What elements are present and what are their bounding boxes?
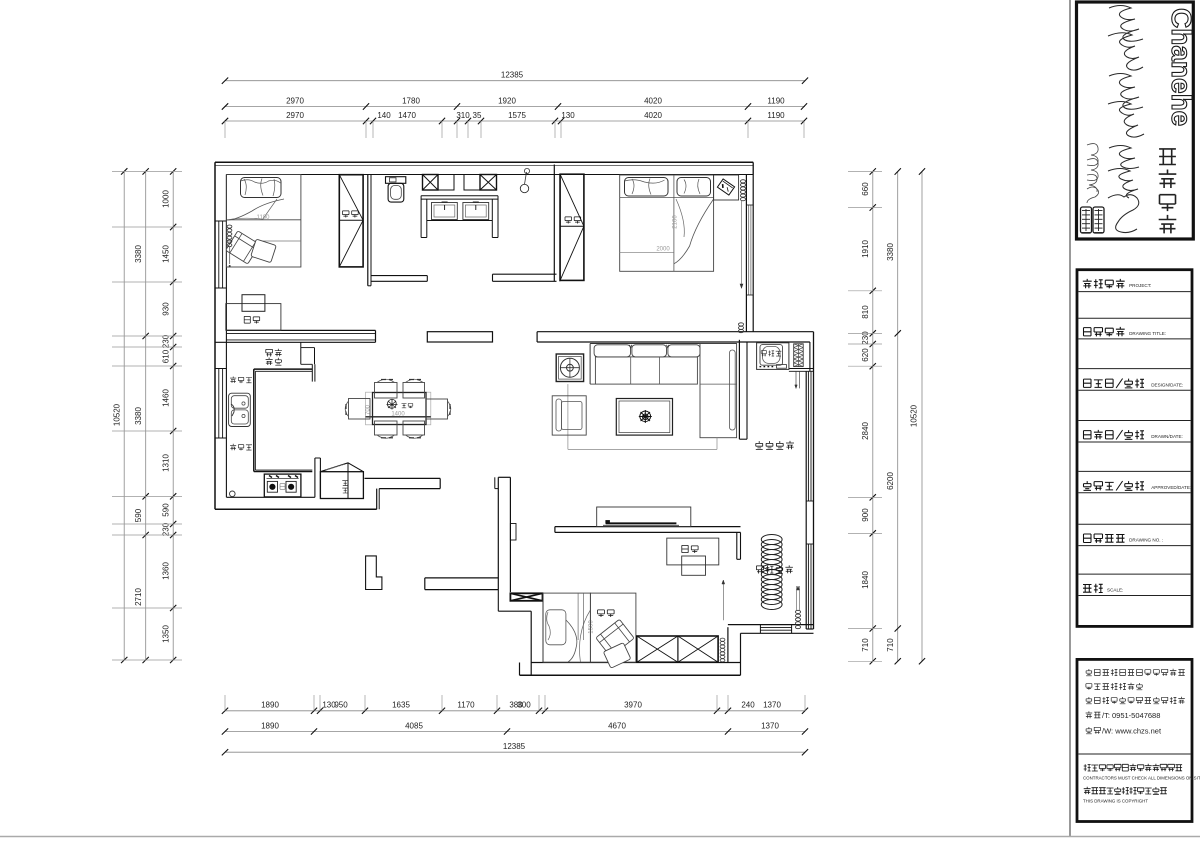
svg-text:2970: 2970 <box>286 96 304 105</box>
svg-text:1635: 1635 <box>392 701 410 710</box>
svg-text:10520: 10520 <box>910 404 919 427</box>
svg-text:700: 700 <box>365 404 371 415</box>
svg-text:DRAWING NO. :: DRAWING NO. : <box>1129 538 1163 543</box>
svg-text:APPROVED/DATE:: APPROVED/DATE: <box>1151 485 1191 490</box>
svg-text:4020: 4020 <box>644 111 662 120</box>
svg-text:Chanehe: Chanehe <box>1166 8 1197 126</box>
svg-text:1350: 1350 <box>162 625 171 643</box>
svg-text:1370: 1370 <box>763 701 781 710</box>
svg-text:2000: 2000 <box>656 247 670 253</box>
svg-text:CONTRACTORS MUST CHECK ALL DIM: CONTRACTORS MUST CHECK ALL DIMENSIONS ON… <box>1083 776 1200 781</box>
svg-text:230: 230 <box>162 334 171 348</box>
svg-text:2840: 2840 <box>861 422 870 440</box>
svg-text:130: 130 <box>561 111 575 120</box>
svg-text:DRAWING TITLE:: DRAWING TITLE: <box>1129 331 1166 336</box>
svg-text:/W: www.chzs.net: /W: www.chzs.net <box>1102 726 1162 735</box>
svg-text:12385: 12385 <box>501 71 524 80</box>
svg-text:590: 590 <box>134 508 143 522</box>
svg-text:1575: 1575 <box>508 111 526 120</box>
svg-text:10520: 10520 <box>113 403 122 426</box>
svg-text:PROJECT:: PROJECT: <box>1129 283 1151 288</box>
svg-text:1370: 1370 <box>761 721 779 730</box>
svg-text:1460: 1460 <box>162 389 171 407</box>
svg-text:1780: 1780 <box>402 96 420 105</box>
svg-text:310: 310 <box>456 111 470 120</box>
svg-text:710: 710 <box>886 638 895 652</box>
svg-text:930: 930 <box>162 302 171 316</box>
svg-text:710: 710 <box>861 638 870 652</box>
svg-text:4020: 4020 <box>644 96 662 105</box>
svg-text:900: 900 <box>861 508 870 522</box>
svg-text:/T: 0951-5047688: /T: 0951-5047688 <box>1102 711 1160 720</box>
svg-text:1500: 1500 <box>588 620 594 634</box>
svg-text:240: 240 <box>741 701 755 710</box>
svg-text:1100: 1100 <box>257 215 271 221</box>
svg-text:950: 950 <box>334 701 348 710</box>
svg-text:1450: 1450 <box>162 245 171 263</box>
svg-text:THIS DRAWING IS COPYRIGHT: THIS DRAWING IS COPYRIGHT <box>1083 799 1148 804</box>
svg-text:1920: 1920 <box>498 96 516 105</box>
svg-text:4670: 4670 <box>608 721 626 730</box>
svg-text:810: 810 <box>861 305 870 319</box>
svg-text:2970: 2970 <box>286 111 304 120</box>
svg-text:1890: 1890 <box>261 721 279 730</box>
svg-text:1910: 1910 <box>861 240 870 258</box>
svg-text:660: 660 <box>861 182 870 196</box>
svg-text:1360: 1360 <box>162 562 171 580</box>
svg-text:DESIGN/DATE:: DESIGN/DATE: <box>1151 383 1183 388</box>
svg-text:4085: 4085 <box>405 721 423 730</box>
svg-text:620: 620 <box>861 348 870 362</box>
svg-text:230: 230 <box>162 522 171 536</box>
svg-text:140: 140 <box>377 111 391 120</box>
svg-text:1310: 1310 <box>162 454 171 472</box>
svg-text:1400: 1400 <box>391 412 405 418</box>
svg-text:2710: 2710 <box>134 588 143 606</box>
svg-text:1190: 1190 <box>767 111 785 120</box>
svg-text:1890: 1890 <box>261 701 279 710</box>
svg-text:1170: 1170 <box>457 701 475 710</box>
svg-text:3970: 3970 <box>624 701 642 710</box>
svg-text:SCALE:: SCALE: <box>1107 588 1123 593</box>
svg-text:1190: 1190 <box>767 96 785 105</box>
svg-text:3380: 3380 <box>134 407 143 425</box>
svg-text:590: 590 <box>162 503 171 517</box>
svg-text:12385: 12385 <box>503 742 526 751</box>
svg-text:610: 610 <box>162 349 171 363</box>
svg-text:6200: 6200 <box>886 472 895 490</box>
svg-text:2100: 2100 <box>673 215 679 229</box>
svg-text:3380: 3380 <box>134 245 143 263</box>
svg-text:300: 300 <box>517 701 531 710</box>
svg-text:3380: 3380 <box>886 243 895 261</box>
svg-text:1000: 1000 <box>162 190 171 208</box>
svg-text:1470: 1470 <box>398 111 416 120</box>
svg-text:35: 35 <box>473 111 482 120</box>
svg-text:DRAWN/DATE:: DRAWN/DATE: <box>1151 434 1183 439</box>
svg-text:1840: 1840 <box>861 571 870 589</box>
svg-text:230: 230 <box>861 331 870 345</box>
